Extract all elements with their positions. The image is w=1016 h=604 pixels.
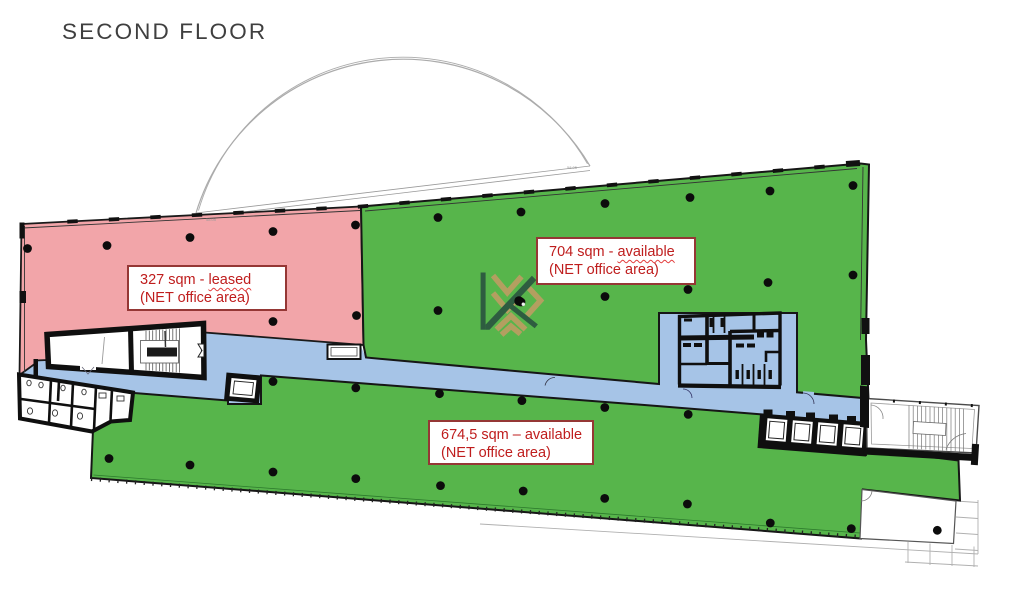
svg-text:58.05: 58.05 (567, 165, 578, 170)
svg-text:58.05: 58.05 (206, 217, 217, 222)
